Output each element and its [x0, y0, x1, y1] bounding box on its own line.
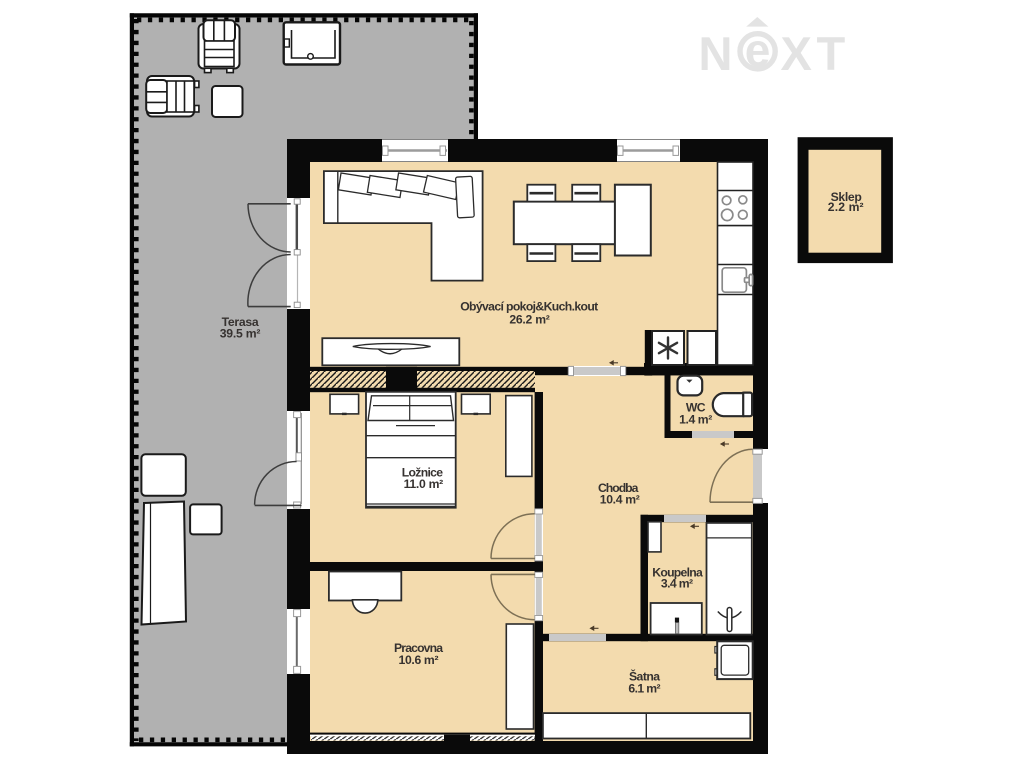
svg-text:Obývací pokoj&Kuch.kout: Obývací pokoj&Kuch.kout — [460, 300, 598, 314]
svg-text:10.6 m²: 10.6 m² — [399, 653, 439, 667]
svg-text:N: N — [699, 27, 733, 80]
svg-text:X: X — [781, 27, 812, 80]
svg-text:39.5 m²: 39.5 m² — [220, 327, 261, 341]
svg-text:1.4 m²: 1.4 m² — [679, 412, 712, 426]
svg-text:2.2 m²: 2.2 m² — [828, 200, 864, 214]
svg-text:6.1 m²: 6.1 m² — [628, 681, 660, 695]
svg-text:11.0 m²: 11.0 m² — [404, 477, 444, 491]
svg-text:e: e — [745, 24, 771, 76]
svg-text:T: T — [817, 27, 846, 80]
svg-text:3.4 m²: 3.4 m² — [661, 577, 693, 591]
svg-text:10.4 m²: 10.4 m² — [600, 493, 640, 507]
svg-text:26.2 m²: 26.2 m² — [509, 312, 550, 326]
